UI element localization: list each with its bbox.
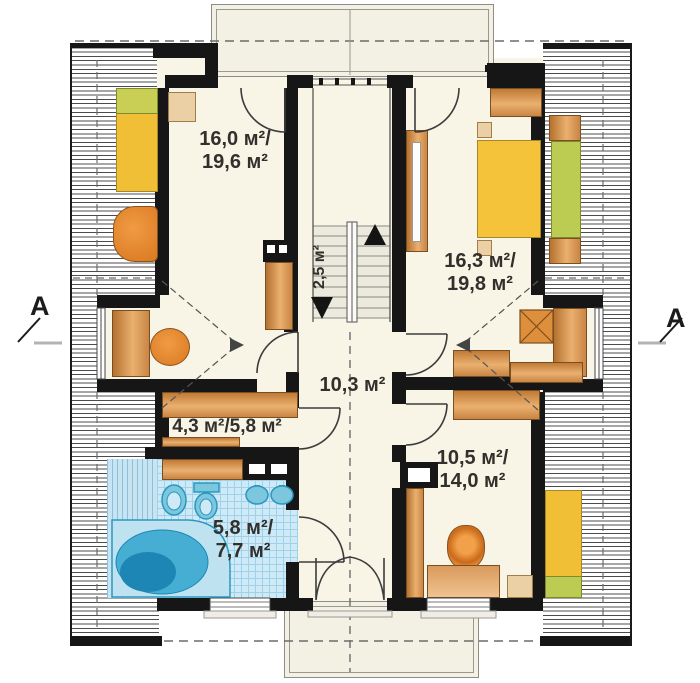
door-closet — [299, 408, 340, 449]
window-bottom-right — [427, 598, 490, 611]
rail-tick — [319, 78, 323, 85]
rail-tick — [335, 78, 339, 85]
label-bathroom: 5,8 м²/ 7,7 м² — [183, 517, 303, 563]
label-bedroom-left: 16,0 м²/ 19,6 м² — [175, 128, 295, 174]
sink — [246, 486, 268, 504]
door-bedroom-right — [406, 334, 447, 375]
label-room-bottom-right-line1: 10,5 м²/ — [415, 447, 530, 470]
door-bedroom-left — [257, 332, 298, 373]
dormer-contour-right — [464, 281, 538, 410]
contour-arrowhead — [230, 338, 244, 352]
door-balcony-right — [415, 88, 459, 132]
floor-plan-canvas: 16,0 м²/ 19,6 м² 16,3 м²/ 19,8 м² 10,3 м… — [0, 0, 700, 683]
label-stairs: 2,5 м² — [308, 237, 326, 297]
label-bedroom-right: 16,3 м²/ 19,8 м² — [420, 250, 540, 296]
toilet-bowl — [200, 499, 212, 515]
toilet-tank — [194, 483, 219, 492]
label-bedroom-right-line2: 19,8 м² — [420, 273, 540, 296]
sink — [271, 486, 293, 504]
label-bedroom-left-line1: 16,0 м²/ — [175, 128, 295, 151]
rail-tick — [351, 78, 355, 85]
window-sill — [421, 611, 496, 618]
label-room-bottom-right: 10,5 м²/ 14,0 м² — [415, 447, 530, 493]
label-bedroom-right-line1: 16,3 м²/ — [420, 250, 540, 273]
bidet-bowl — [167, 492, 181, 510]
plan-linework — [0, 0, 700, 683]
french-door-sill — [308, 611, 392, 617]
contour-arrowhead — [456, 338, 470, 352]
section-marker-right: A — [666, 303, 686, 334]
door-bathroom — [299, 517, 344, 562]
window-sill — [204, 611, 276, 618]
rail-tick — [367, 78, 371, 85]
label-room-bottom-right-line2: 14,0 м² — [415, 470, 530, 493]
label-bathroom-line2: 7,7 м² — [183, 540, 303, 563]
label-bathroom-line1: 5,8 м²/ — [183, 517, 303, 540]
window-bathroom — [210, 598, 270, 611]
label-hall: 10,3 м² — [300, 374, 405, 397]
label-closet: 4,3 м²/5,8 м² — [157, 415, 297, 438]
dormer-contour-left — [162, 281, 236, 408]
bathtub-deep — [120, 552, 176, 592]
door-room-bottom-right — [406, 404, 447, 445]
label-bedroom-left-line2: 19,6 м² — [175, 151, 295, 174]
section-marker-left: A — [30, 291, 50, 322]
stair-window-rail — [313, 79, 387, 85]
door-balcony-left — [241, 88, 285, 132]
